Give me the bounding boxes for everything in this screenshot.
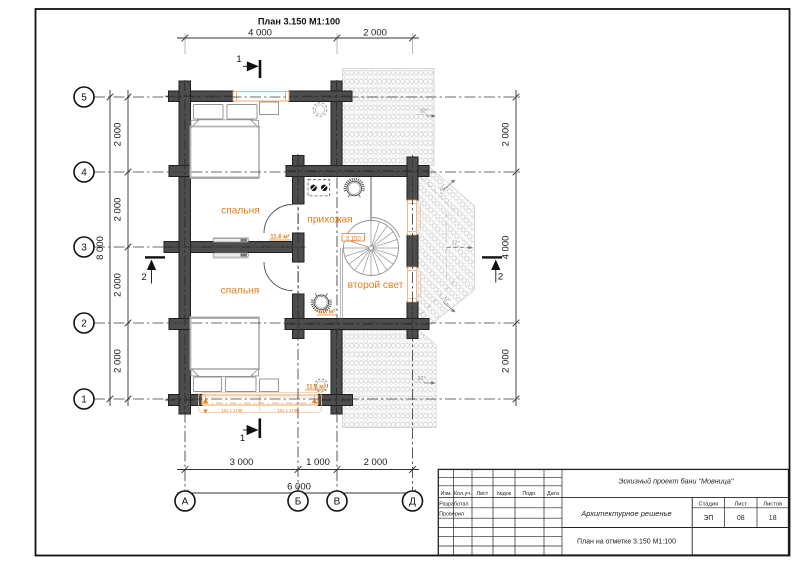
svg-text:3 000: 3 000 [230,457,254,468]
svg-text:2: 2 [141,272,146,283]
svg-text:32°: 32° [420,109,428,115]
svg-text:Дата: Дата [547,491,559,497]
svg-text:Б: Б [295,497,302,508]
svg-text:2 000: 2 000 [501,349,512,373]
svg-text:спальня: спальня [221,206,260,217]
svg-text:18: 18 [769,515,777,522]
svg-text:2 000: 2 000 [363,28,387,39]
svg-text:Эскизный проект бани "Мовница": Эскизный проект бани "Мовница" [619,477,734,486]
svg-text:151 х 1746: 151 х 1746 [278,408,299,413]
svg-text:ЭП: ЭП [703,515,713,522]
svg-text:4: 4 [81,168,87,179]
svg-text:Лист: Лист [477,491,489,497]
svg-text:2 000: 2 000 [501,123,512,147]
svg-text:Архитектурное решенье: Архитектурное решенье [580,509,671,518]
svg-text:1: 1 [236,54,241,65]
svg-text:1: 1 [240,433,245,444]
svg-text:1 000: 1 000 [306,457,330,468]
svg-text:3: 3 [81,243,87,254]
svg-text:Кол.уч.: Кол.уч. [454,491,472,497]
svg-text:32°: 32° [417,376,425,382]
svg-text:11.6 м²: 11.6 м² [270,234,289,241]
svg-text:спальня: спальня [221,286,260,297]
svg-text:Листов: Листов [763,502,782,508]
svg-text:2 000: 2 000 [113,123,124,147]
svg-text:2: 2 [498,272,503,283]
svg-text:08: 08 [737,515,745,522]
svg-text:А: А [182,497,189,508]
svg-text:В: В [334,497,341,508]
svg-text:Проверил: Проверил [439,512,464,518]
svg-text:№док: №док [497,491,512,497]
svg-text:4 000: 4 000 [248,28,272,39]
svg-text:Стадия: Стадия [699,502,719,508]
svg-text:2 000: 2 000 [113,198,124,222]
svg-text:Лист: Лист [734,502,747,508]
svg-text:2: 2 [81,319,87,330]
svg-text:2 000: 2 000 [364,457,388,468]
svg-text:2 000: 2 000 [113,273,124,297]
svg-text:Д: Д [409,497,416,508]
svg-text:Изм.: Изм. [441,491,453,497]
svg-text:151 х 1746: 151 х 1746 [222,408,243,413]
svg-text:План на отметке 3.150 М1:100: План на отметке 3.150 М1:100 [577,539,676,546]
svg-text:3.150: 3.150 [346,237,362,243]
svg-text:План 3.150 М1:100: План 3.150 М1:100 [258,17,340,27]
svg-text:2 000: 2 000 [113,349,124,373]
svg-text:11.6 м²: 11.6 м² [306,384,325,391]
svg-text:1: 1 [81,395,87,406]
svg-text:8 000: 8 000 [95,236,106,260]
svg-text:Подп.: Подп. [522,491,536,497]
svg-text:4 000: 4 000 [501,236,512,260]
svg-text:второй свет: второй свет [348,280,404,291]
svg-text:прихожая: прихожая [307,215,352,226]
svg-text:Разработал: Разработал [439,502,468,508]
svg-text:5.3 м²: 5.3 м² [319,309,335,316]
svg-text:5: 5 [81,93,87,104]
